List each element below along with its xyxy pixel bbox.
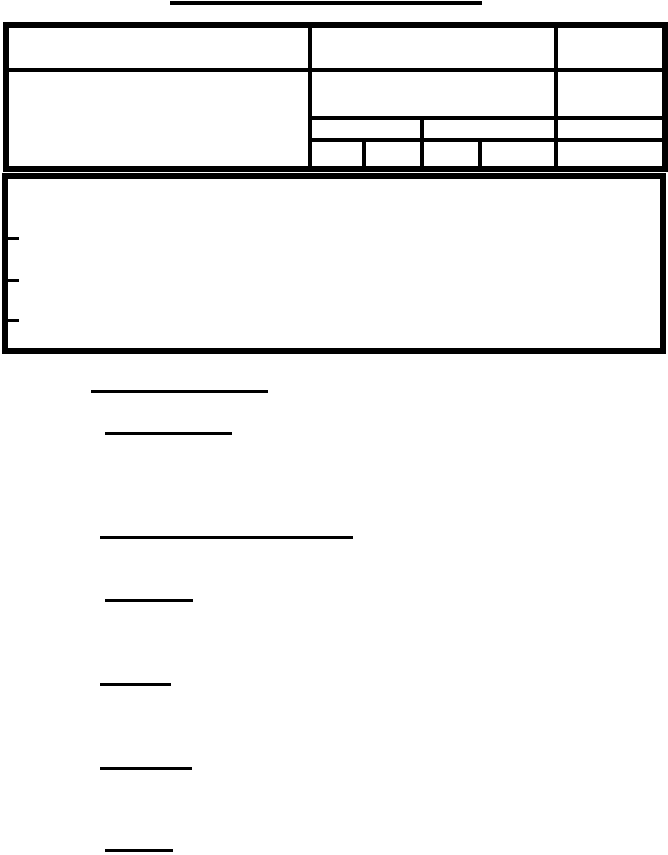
- fill-line-1: [91, 390, 268, 393]
- header-row-divider: [9, 68, 662, 72]
- title-underline: [170, 1, 482, 5]
- scanned-form-page: [0, 0, 668, 855]
- fill-line-6: [100, 767, 192, 770]
- list-dash-2: [7, 279, 19, 282]
- list-dash-1: [7, 237, 19, 240]
- list-dash-3: [7, 319, 19, 322]
- header-table-frame: [3, 22, 668, 172]
- notes-box-frame: [2, 173, 666, 354]
- fill-line-4: [105, 599, 193, 602]
- sub-column-divider-a: [362, 142, 366, 166]
- left-column-divider: [308, 28, 312, 166]
- fill-line-3: [100, 536, 353, 539]
- sub-column-divider-c: [478, 142, 482, 166]
- right-column-divider: [554, 28, 558, 166]
- middle-row-divider-upper: [312, 116, 662, 120]
- fill-line-5: [100, 683, 171, 686]
- fill-line-2: [105, 432, 232, 435]
- fill-line-7: [105, 849, 173, 852]
- sub-column-divider-b: [420, 120, 424, 166]
